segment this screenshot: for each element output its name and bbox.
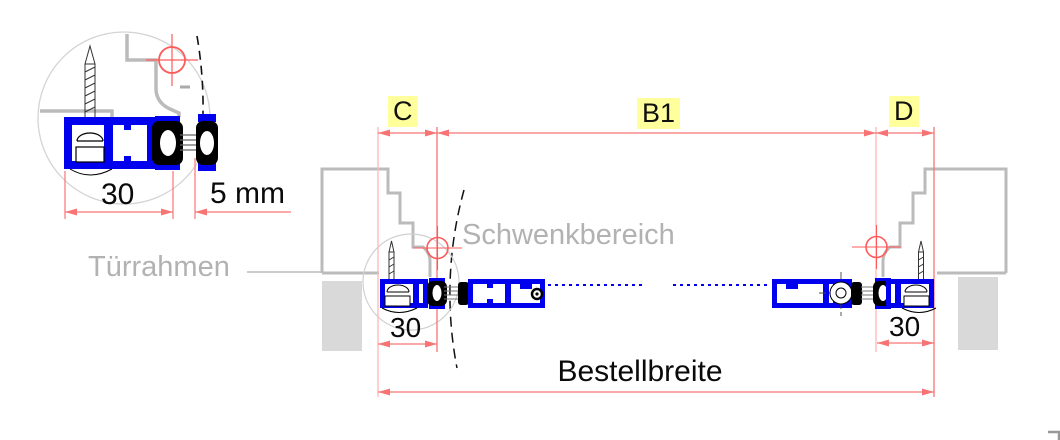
detail-gap-dim: 5 mm — [210, 179, 285, 209]
detail-crosshair-icon — [146, 34, 198, 86]
door-frame-label: Türrahmen — [88, 252, 230, 283]
screw-left-icon — [389, 241, 394, 279]
detail-frame-outline — [40, 34, 179, 117]
left-width-dim: 30 — [390, 313, 421, 343]
profile-right — [772, 272, 936, 316]
detail-screw-icon — [85, 46, 95, 117]
corner-fragment — [1048, 432, 1059, 440]
technical-drawing-canvas: C B1 D 30 5 mm Türrahmen Schwenkbereich … — [0, 0, 1060, 440]
crosshair-right-icon — [852, 225, 901, 269]
section-label-c: C — [388, 96, 418, 127]
order-width-label: Bestellbreite — [557, 357, 722, 387]
profile-left — [380, 278, 545, 313]
detail-width-dim: 30 — [101, 180, 134, 210]
wall-section-left — [322, 281, 362, 351]
swing-arc — [450, 190, 464, 368]
screw-right-icon — [919, 241, 924, 279]
wall-section-right — [958, 277, 998, 350]
swing-area-label: Schwenkbereich — [462, 220, 675, 251]
section-label-b1: B1 — [637, 98, 680, 129]
right-width-dim: 30 — [889, 312, 920, 342]
section-label-d: D — [889, 96, 919, 127]
